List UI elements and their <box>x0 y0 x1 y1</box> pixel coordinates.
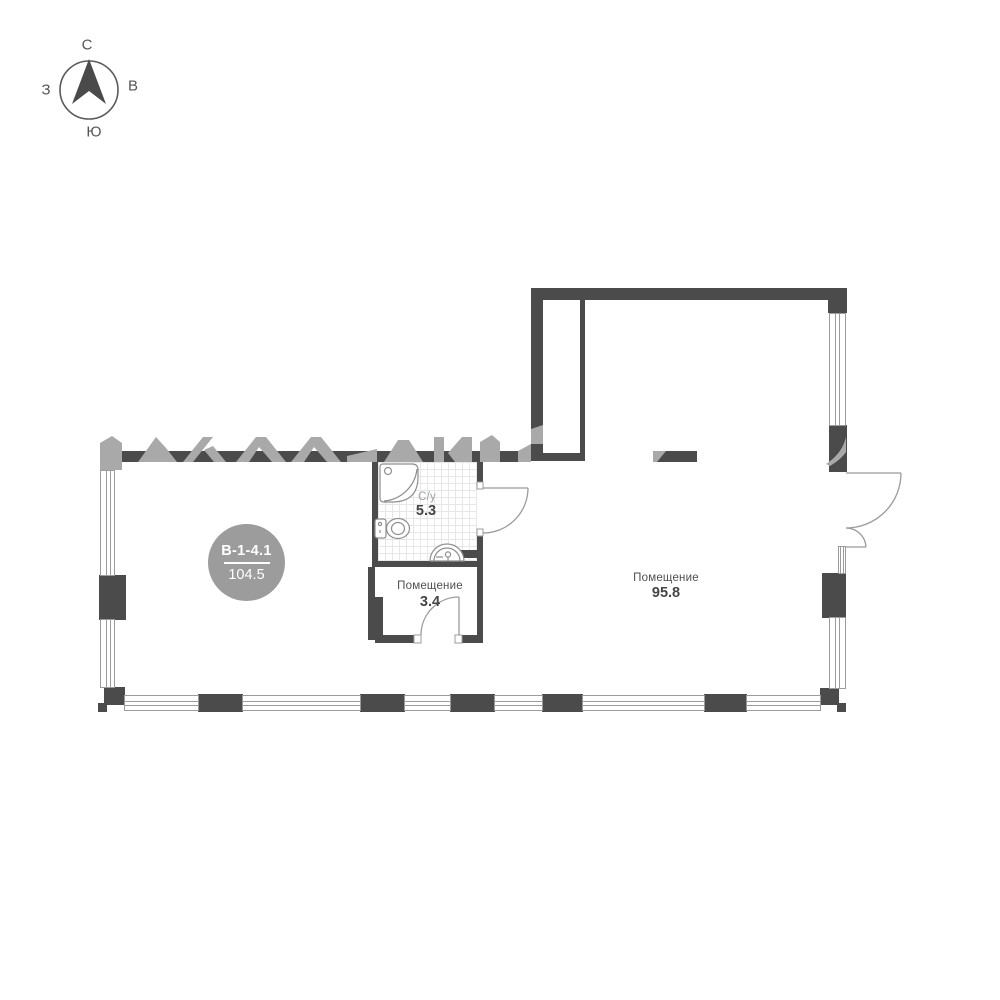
wall-storage-left-pier <box>368 597 383 640</box>
wall-top-left <box>100 451 531 462</box>
wall-stub-bathroom <box>460 550 477 558</box>
wall-pier-right-upper <box>829 425 847 472</box>
wall-wing-top <box>531 288 847 300</box>
wall-pier-right-lower <box>822 573 846 618</box>
floor-plan-canvas: С В З Ю <box>0 0 1000 1000</box>
unit-badge: В-1-4.1 104.5 <box>208 524 285 601</box>
window-bottom-5 <box>582 695 705 711</box>
wall-pier-left <box>99 575 126 620</box>
window-right-lower <box>829 617 846 689</box>
compass-icon <box>0 0 180 180</box>
window-bottom-4 <box>494 695 543 711</box>
window-right-wing <box>829 313 846 426</box>
wall-pier-bottom-4 <box>542 694 583 712</box>
window-bottom-1 <box>124 695 199 711</box>
unit-code: В-1-4.1 <box>221 543 271 559</box>
badge-divider <box>224 562 270 564</box>
compass-north-label: С <box>82 37 93 54</box>
compass-west-label: З <box>41 82 50 99</box>
plan-linework <box>0 0 1000 1000</box>
wall-bathroom-bottom <box>372 561 483 567</box>
wall-bathroom-right-lower <box>477 535 483 643</box>
bathroom-door <box>483 488 528 533</box>
compass-east-label: В <box>128 78 138 95</box>
wall-bathroom-left <box>372 460 378 567</box>
main-room-area-label: 95.8 <box>652 585 680 601</box>
wall-stub-middle <box>653 451 697 462</box>
wall-pier-bottom-1 <box>198 694 243 712</box>
wall-shaft-right <box>580 298 585 456</box>
wall-shaft-left <box>531 288 543 461</box>
wall-bathroom-right-upper <box>477 457 483 488</box>
window-bottom-6 <box>746 695 821 711</box>
wall-corner-bottom-left-cap <box>98 703 107 712</box>
window-bottom-2 <box>242 695 361 711</box>
wall-pier-bottom-3 <box>450 694 495 712</box>
unit-total-area: 104.5 <box>228 567 264 583</box>
wall-corner-top-left <box>100 451 121 470</box>
compass-south-label: Ю <box>86 124 101 141</box>
window-bottom-3 <box>404 695 451 711</box>
wall-storage-bottom-left <box>375 635 419 643</box>
wall-corner-bottom-left <box>104 687 125 705</box>
window-left-lower <box>100 619 115 688</box>
bathroom-name-label: С/у <box>418 491 436 503</box>
storage-name-label: Помещение <box>397 580 463 592</box>
bathroom-area-label: 5.3 <box>416 503 436 519</box>
wall-shaft-bottom <box>543 453 585 461</box>
wall-pier-bottom-5 <box>704 694 747 712</box>
entry-door <box>846 473 901 547</box>
window-left-upper <box>100 470 115 576</box>
main-room-name-label: Помещение <box>633 572 699 584</box>
north-arrow-icon <box>72 59 106 104</box>
window-right-sidelight <box>838 546 846 574</box>
wall-storage-left <box>368 567 375 600</box>
wall-corner-bottom-right-cap <box>837 703 846 712</box>
wall-pier-bottom-2 <box>360 694 405 712</box>
wall-storage-bottom-right <box>459 635 483 643</box>
storage-area-label: 3.4 <box>420 594 440 610</box>
